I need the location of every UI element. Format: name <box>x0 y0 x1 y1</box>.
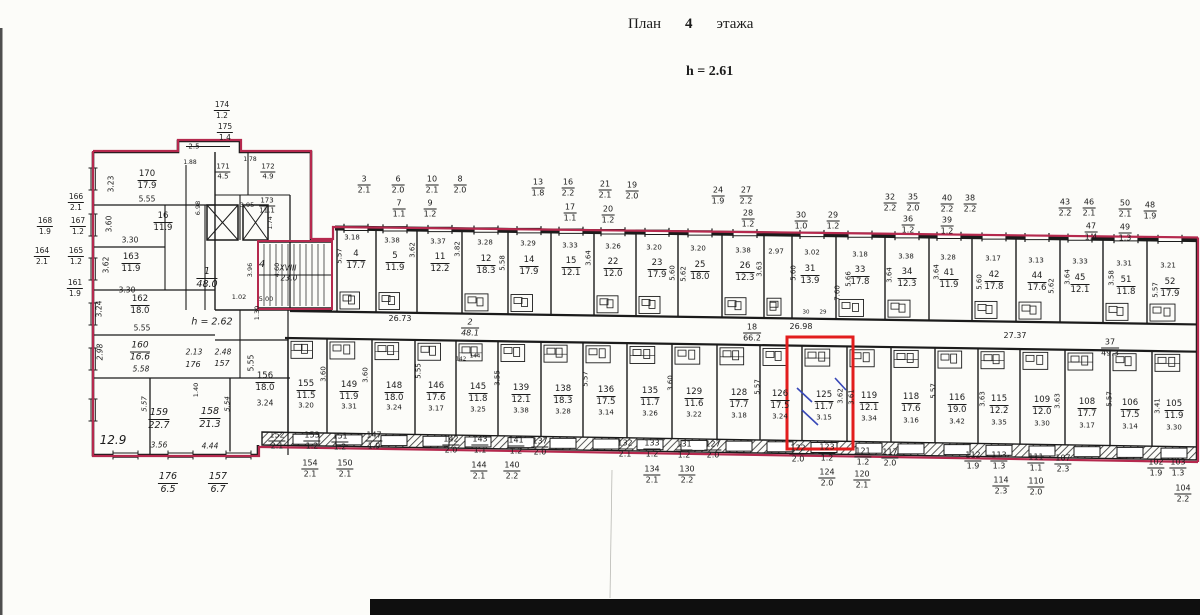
floor-plan-drawing <box>0 0 1200 615</box>
walls-layer <box>89 141 1198 460</box>
scanned-floor-plan-page: План 4 этажа h = 2.61 1662.11681.91671.2… <box>0 0 1200 615</box>
highlight-rectangle <box>787 337 853 449</box>
red-outline-layer <box>93 140 1198 462</box>
